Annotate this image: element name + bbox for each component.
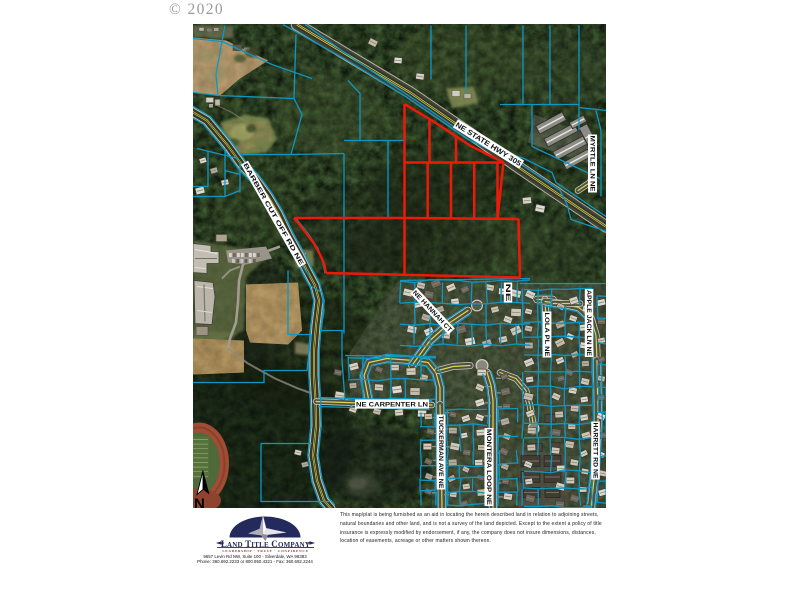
svg-text:LOLA PL NE: LOLA PL NE — [543, 312, 550, 357]
svg-text:N: N — [194, 495, 205, 508]
svg-text:TUCKERMAN AVE NE: TUCKERMAN AVE NE — [437, 415, 444, 489]
svg-text:APPLE JACK LN NE: APPLE JACK LN NE — [585, 290, 591, 356]
svg-text:MYRTLE LN NE: MYRTLE LN NE — [588, 135, 595, 192]
svg-text:NE: NE — [504, 283, 510, 301]
svg-text:NE CARPENTER LN: NE CARPENTER LN — [356, 401, 428, 408]
svg-text:MONTERA LOOP NE: MONTERA LOOP NE — [485, 429, 492, 506]
svg-text:HARRETT RD NE: HARRETT RD NE — [592, 422, 599, 478]
